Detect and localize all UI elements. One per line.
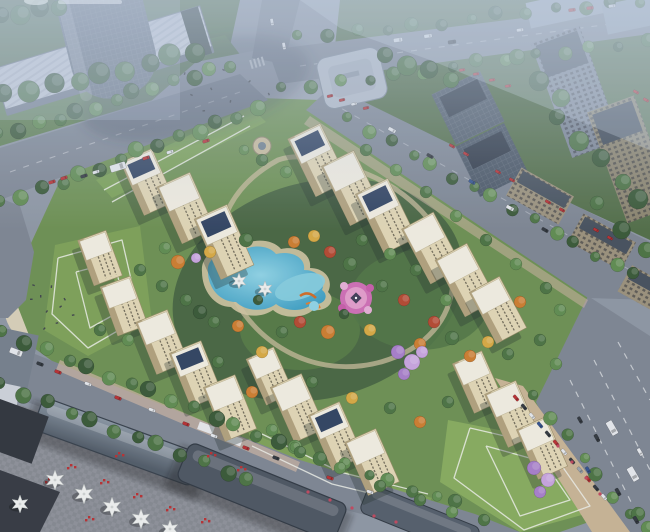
- atmosphere: [0, 0, 650, 532]
- aerial-rendering: [0, 0, 650, 532]
- cool-tint: [0, 0, 650, 532]
- rendering-canvas: [0, 0, 650, 532]
- watermark-text-band: [58, 0, 122, 4]
